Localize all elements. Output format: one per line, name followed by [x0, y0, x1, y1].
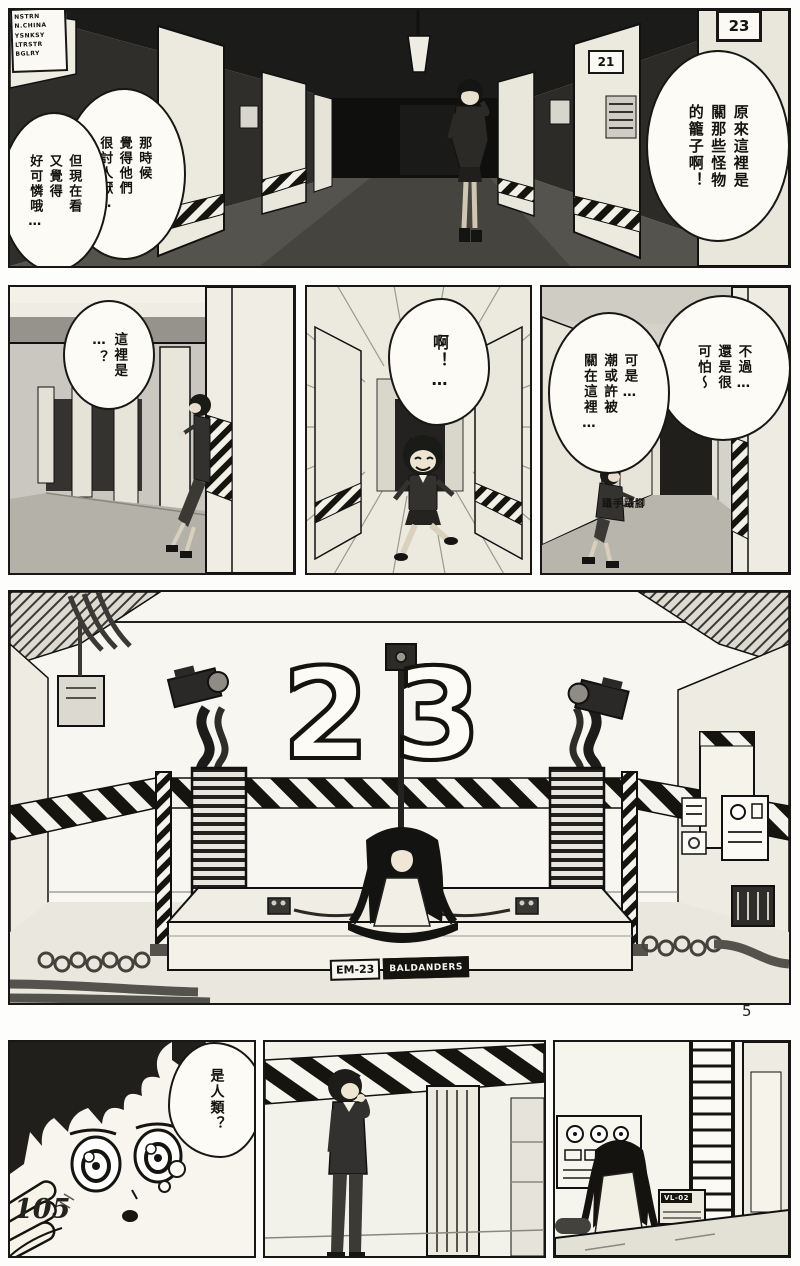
speech-text: 這裡是 …？: [89, 332, 130, 379]
speech-bubble-where: 這裡是 …？: [63, 300, 155, 410]
speech-text: 但現在看 又覺得 好可憐哦…: [25, 154, 84, 231]
panel-cage-room: 23 EM-23 BALDANDERS: [8, 590, 791, 1005]
speech-text: 原來這裡是 關那些怪物 的籠子啊！: [684, 104, 752, 189]
speech-text: 可是… 潮或許被 關在這裡…: [579, 353, 640, 433]
thought-bubble-human: 是人類？: [168, 1042, 256, 1158]
panel-sneaking: 不過… 還是很 可怕～ 可是… 潮或許被 關在這裡… 躡手躡腳: [540, 285, 791, 575]
panel-peeking: 這裡是 …？: [8, 285, 296, 575]
mouth: [122, 1210, 138, 1222]
panel-corridor-wide: NSTRN N.CHINA YSNKSY LTRSTR BGLRY 21 23 …: [8, 8, 791, 268]
platform-sign-name: BALDANDERS: [383, 956, 469, 979]
speech-text: 啊！…: [427, 334, 451, 391]
electric-box: [58, 676, 104, 726]
speech-bubble-cage: 原來這裡是 關那些怪物 的籠子啊！: [646, 50, 790, 242]
thought-trail-large: [168, 1160, 186, 1178]
speech-bubble-ushio: 可是… 潮或許被 關在這裡…: [548, 312, 670, 474]
sfx-tiptoe: 躡手躡腳: [602, 495, 646, 510]
girl-console-art: [555, 1042, 789, 1256]
panel-girl-console: VL-02: [553, 1040, 791, 1258]
left-eye: [72, 1137, 120, 1191]
manga-page: NSTRN N.CHINA YSNKSY LTRSTR BGLRY 21 23 …: [0, 0, 800, 1266]
thinking-figure-art: [265, 1042, 544, 1256]
page-number: 105: [14, 1194, 70, 1225]
chapter-page-marker: 5: [742, 1002, 752, 1020]
panel-shocked-face: 是人類？: [8, 1040, 256, 1258]
room-number-23: 23: [282, 652, 505, 778]
platform-sign-model: EM-23: [330, 959, 381, 981]
door-plate-21: 21: [588, 50, 624, 74]
floor-pipe: [555, 1218, 591, 1234]
console-label-vl02: VL-02: [661, 1193, 692, 1203]
speech-bubble-ah: 啊！…: [388, 298, 490, 426]
panel-thinking-figure: [263, 1040, 546, 1258]
platform-sign: EM-23 BALDANDERS: [330, 956, 469, 981]
corridor-corner-art: [10, 287, 294, 573]
corridor-wall-sign: NSTRN N.CHINA YSNKSY LTRSTR BGLRY: [10, 8, 68, 73]
speech-bubble-scary: 不過… 還是很 可怕～: [655, 295, 791, 441]
thought-trail-small: [158, 1180, 171, 1193]
speech-text: 不過… 還是很 可怕～: [693, 344, 754, 393]
panel-running: 啊！…: [305, 285, 532, 575]
vent-frame: [427, 1086, 479, 1256]
door-plate-23: 23: [716, 10, 762, 42]
thought-text: 是人類？: [206, 1068, 227, 1132]
